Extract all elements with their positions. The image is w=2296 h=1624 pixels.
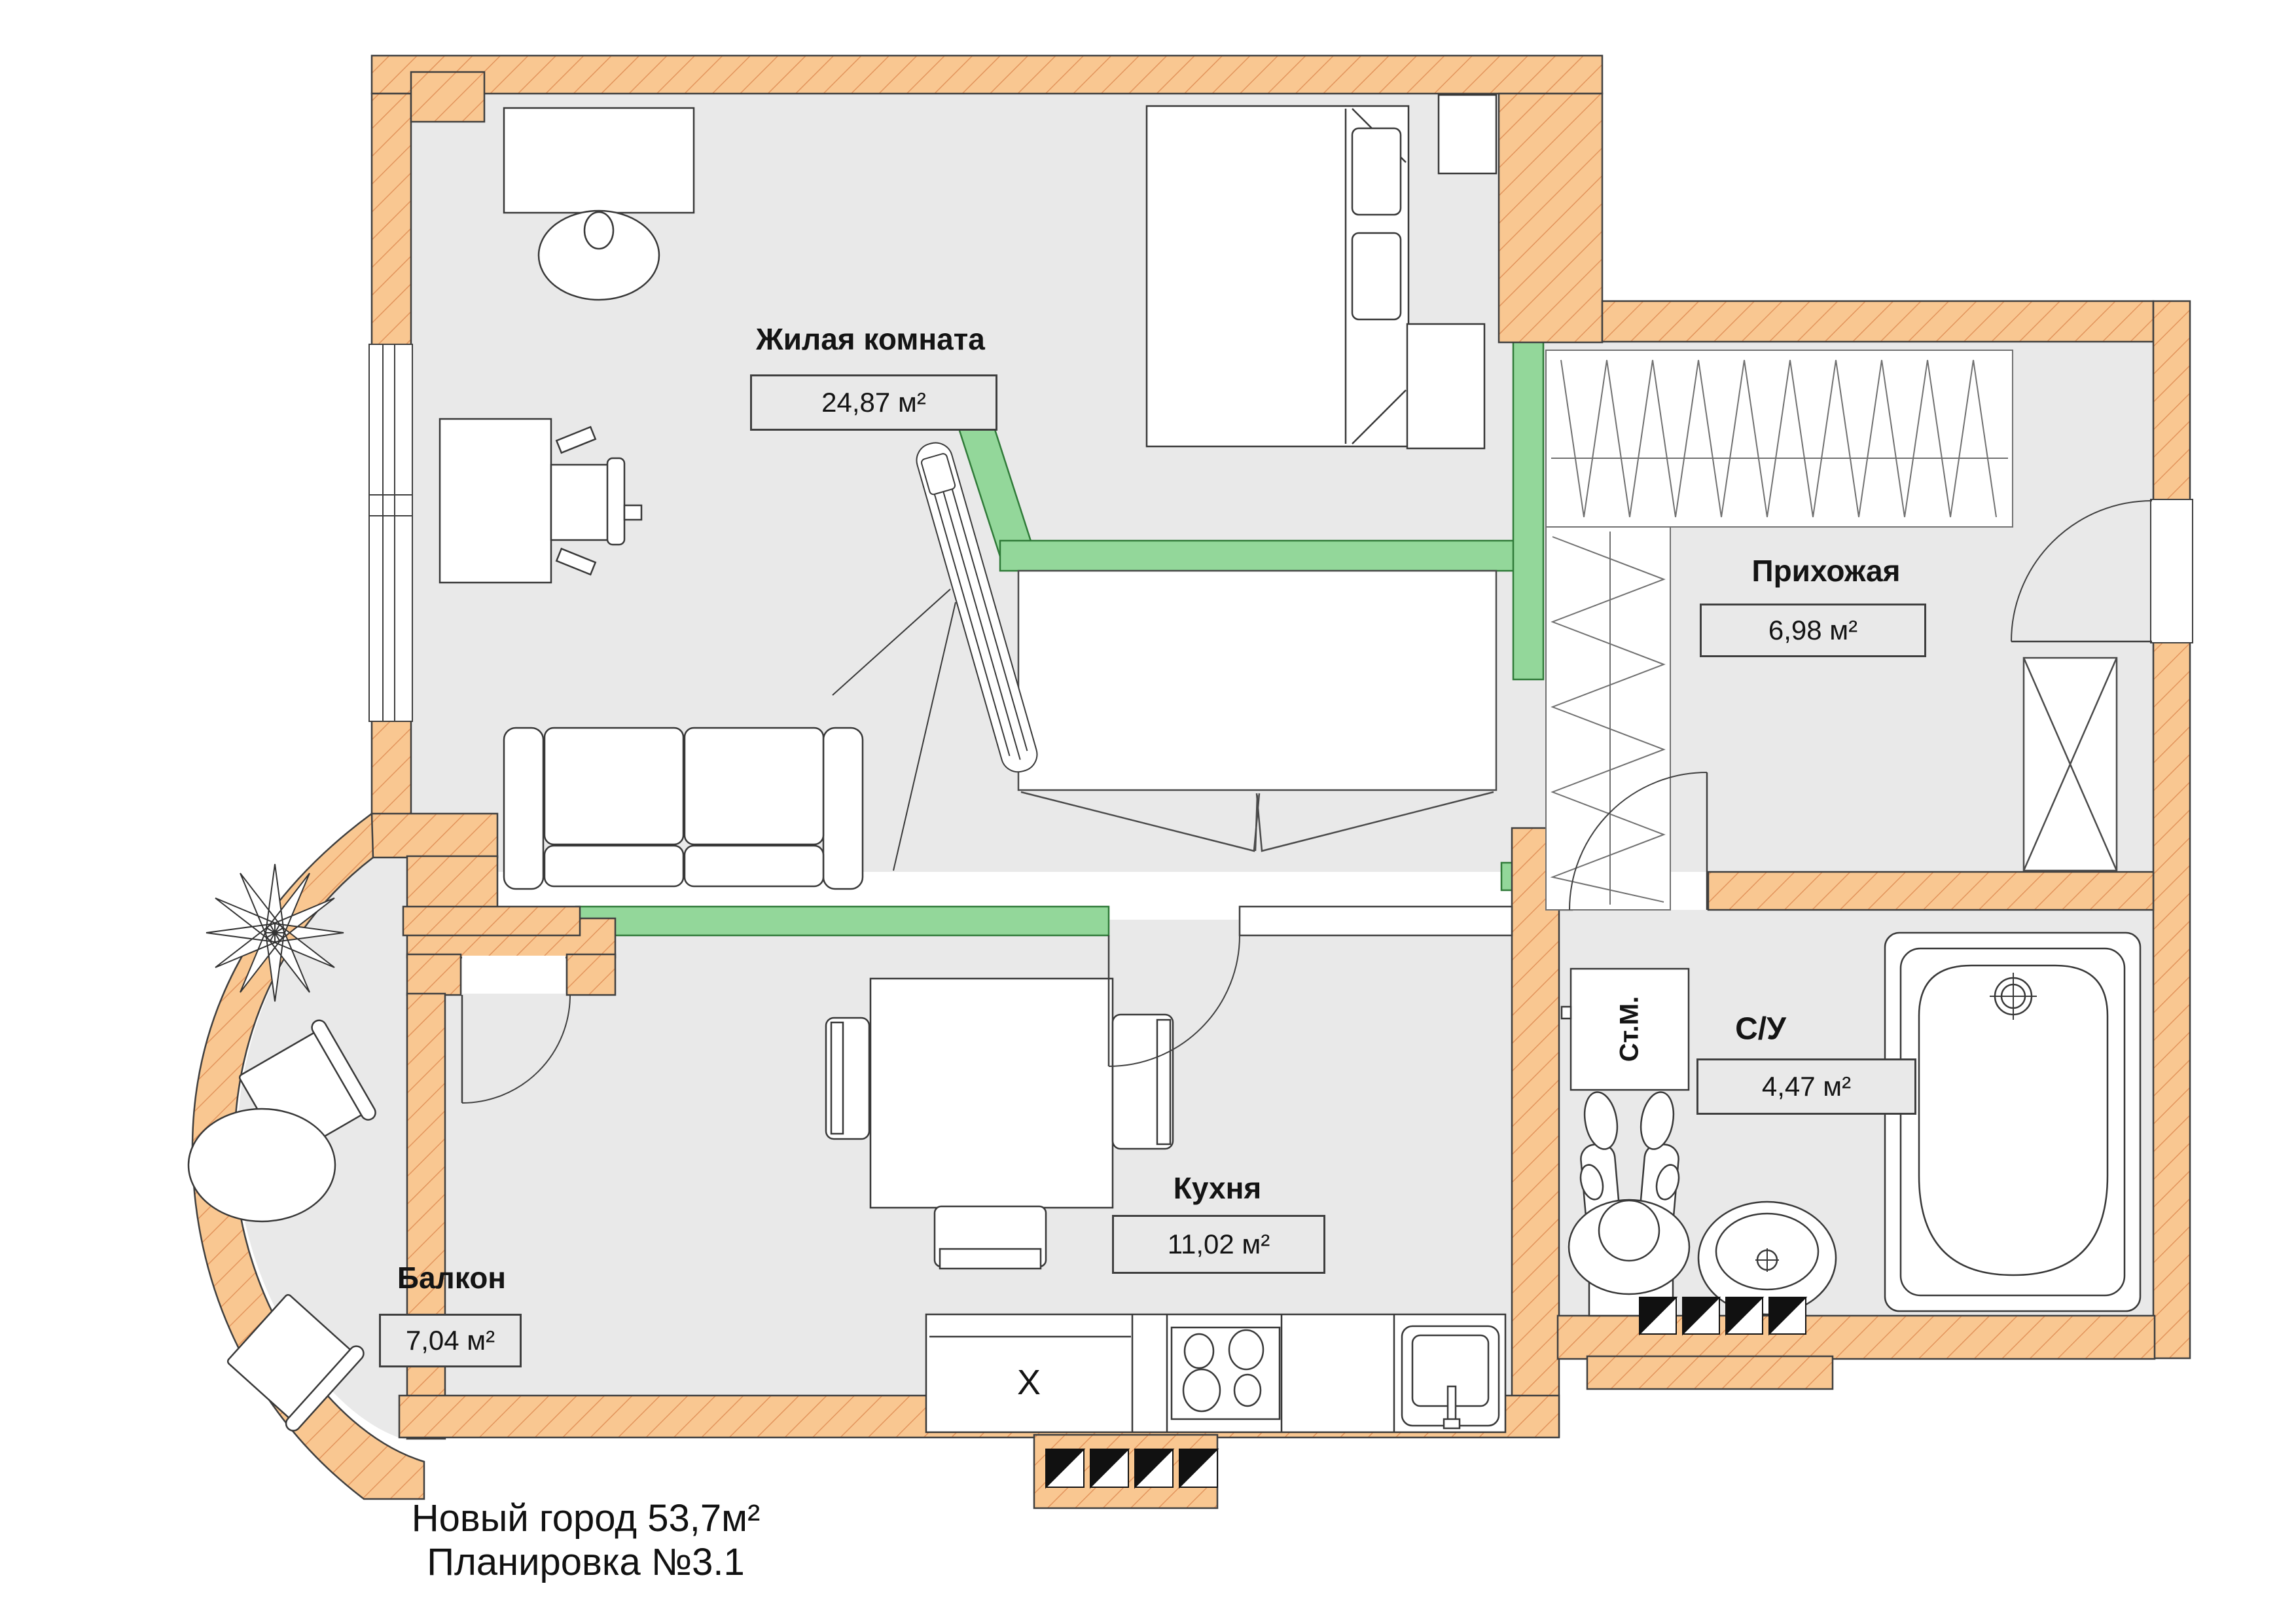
wall-white-piece bbox=[1240, 907, 1512, 935]
plan-title-line1: Новый город 53,7м² bbox=[412, 1498, 761, 1540]
hallway-area-box: 6,98 м² bbox=[1700, 604, 1926, 657]
wall-hall-top bbox=[1602, 301, 2153, 342]
kitchen-counter bbox=[926, 1314, 1505, 1432]
balcony-label: Балкон bbox=[397, 1260, 506, 1295]
green-wall-horizontal bbox=[1000, 541, 1517, 571]
nightstand-top bbox=[1439, 95, 1496, 173]
wall-kitchen-bath-divider bbox=[1512, 828, 1559, 1437]
floor-plan: Жилая комната 24,87 м² Прихожая 6,98 м² … bbox=[0, 0, 2296, 1624]
bed bbox=[1147, 106, 1408, 446]
entrance-opening bbox=[2151, 499, 2193, 643]
wall-balcony-door-jamb-right bbox=[567, 954, 615, 995]
balcony-table bbox=[188, 1109, 335, 1221]
bathroom-label: С/У bbox=[1735, 1011, 1786, 1047]
wall-pier-topright bbox=[1499, 94, 1602, 342]
kitchen-table bbox=[870, 979, 1113, 1208]
green-wall-kitchen bbox=[576, 907, 1109, 935]
wall-bathroom-top bbox=[1708, 872, 2153, 910]
window-left bbox=[369, 344, 412, 721]
balcony-area-box: 7,04 м² bbox=[379, 1314, 522, 1367]
wall-livingroom-bottom bbox=[372, 814, 497, 857]
bathtub bbox=[1885, 933, 2140, 1311]
fridge-label: X bbox=[1017, 1362, 1041, 1403]
wall-balcony-door-jamb-left bbox=[407, 954, 461, 995]
kitchen-area-box: 11,02 м² bbox=[1112, 1215, 1325, 1274]
desk-chair bbox=[539, 211, 659, 300]
washing-machine-label: Ст.М. bbox=[1615, 996, 1645, 1062]
stove bbox=[1172, 1327, 1280, 1419]
console-table bbox=[440, 419, 551, 583]
pillow bbox=[1352, 233, 1401, 319]
wall-balcony-kitchen-divider bbox=[407, 994, 445, 1439]
wall-left-upper bbox=[372, 94, 411, 346]
wall-top bbox=[372, 56, 1602, 94]
wall-kitchen-top-left bbox=[403, 907, 580, 935]
kitchen-sink bbox=[1402, 1326, 1499, 1428]
nightstand-bottom bbox=[1407, 324, 1484, 448]
green-wall-vertical bbox=[1513, 342, 1543, 679]
balcony-opening bbox=[462, 956, 565, 994]
kitchen-label: Кухня bbox=[1174, 1170, 1261, 1206]
floor-plan-graphics bbox=[0, 0, 2296, 1624]
wall-right bbox=[2153, 301, 2190, 1358]
living-room-area-box: 24,87 м² bbox=[750, 374, 997, 431]
sofa bbox=[504, 728, 863, 889]
hallway-label: Прихожая bbox=[1752, 553, 1901, 588]
pillow bbox=[1352, 128, 1401, 215]
desk bbox=[504, 108, 694, 213]
x-cabinet bbox=[2024, 658, 2117, 871]
wall-left-lower bbox=[372, 719, 411, 817]
plan-title-line2: Планировка №3.1 bbox=[427, 1542, 744, 1584]
bathroom-area-box: 4,47 м² bbox=[1696, 1058, 1916, 1115]
dresser bbox=[1018, 571, 1496, 851]
wall-bathroom-step bbox=[1587, 1356, 1833, 1389]
wall-pillar bbox=[411, 72, 484, 122]
living-room-label: Жилая комната bbox=[756, 321, 985, 357]
